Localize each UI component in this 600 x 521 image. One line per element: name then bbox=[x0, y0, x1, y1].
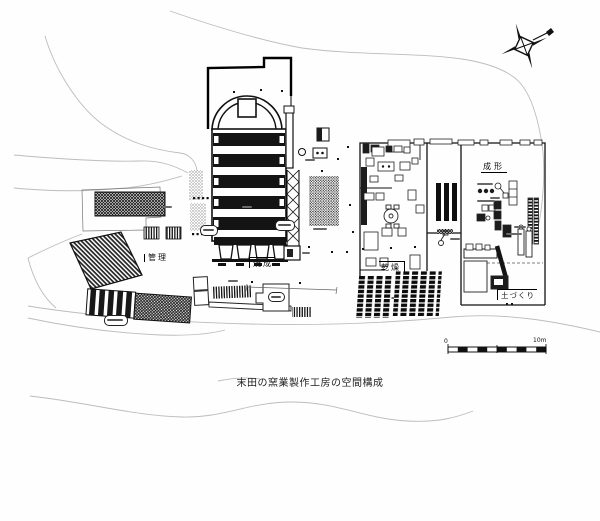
yard-structures bbox=[193, 277, 337, 317]
illegible-micro-label bbox=[305, 159, 315, 161]
area-label-firing: 焼成 bbox=[249, 257, 275, 268]
gas-kiln-tag bbox=[268, 292, 285, 302]
illegible-micro-label bbox=[302, 252, 310, 254]
compass-icon bbox=[501, 23, 554, 68]
management-complex bbox=[70, 187, 192, 323]
illegible-micro-label bbox=[477, 200, 495, 202]
long-building-tag bbox=[104, 315, 128, 326]
long-building bbox=[86, 289, 192, 323]
illegible-micro-label bbox=[313, 228, 327, 230]
scale-bar bbox=[448, 344, 546, 354]
area-label-management: 管理 bbox=[144, 254, 168, 262]
drying-rack-group-left bbox=[354, 276, 393, 318]
illegible-micro-label bbox=[228, 280, 238, 282]
illegible-micro-label bbox=[514, 226, 526, 228]
scale-start-label: 0 bbox=[444, 338, 448, 345]
scale-end-label: 10m bbox=[533, 337, 546, 344]
plan-caption: 末田の窯業製作工房の空間構成 bbox=[205, 374, 415, 389]
shrub-patches bbox=[189, 170, 206, 231]
site-plan-drawing bbox=[0, 0, 600, 521]
storage-area bbox=[309, 176, 339, 226]
illegible-micro-label bbox=[477, 183, 493, 185]
illegible-micro-label bbox=[490, 197, 500, 199]
clay-conveyor bbox=[497, 246, 506, 278]
small-shed-b bbox=[166, 227, 181, 239]
small-shed-a bbox=[144, 227, 159, 239]
site-plan-canvas: 焼成 乾燥 成形 土づくり 管理 0 10m 末田の窯業製作工房の空間構成 bbox=[0, 0, 600, 521]
illegible-micro-label bbox=[450, 238, 460, 240]
shelf-racks bbox=[436, 183, 457, 221]
kiln-tag-left bbox=[200, 225, 218, 236]
management-building-roof bbox=[70, 232, 142, 289]
illegible-micro-label bbox=[242, 206, 252, 208]
yard-equipment bbox=[299, 128, 330, 158]
firewood-stack bbox=[212, 285, 252, 298]
illegible-micro-label bbox=[506, 233, 522, 235]
fuel-rack bbox=[292, 307, 312, 317]
climbing-kiln bbox=[212, 96, 288, 266]
drying-racks bbox=[354, 271, 442, 318]
kiln-tag-right bbox=[275, 220, 295, 231]
area-label-clay-making: 土づくり bbox=[497, 289, 537, 300]
clay-yard bbox=[464, 225, 532, 292]
round-table bbox=[384, 205, 399, 228]
kiln-arch bbox=[212, 96, 282, 131]
storage-shed bbox=[95, 192, 165, 216]
area-label-forming: 成形 bbox=[481, 163, 507, 173]
illegible-micro-label bbox=[162, 206, 172, 208]
door-hatch bbox=[437, 229, 453, 234]
area-label-drying: 乾燥 bbox=[379, 261, 405, 272]
drying-rack-group-right bbox=[393, 271, 442, 316]
